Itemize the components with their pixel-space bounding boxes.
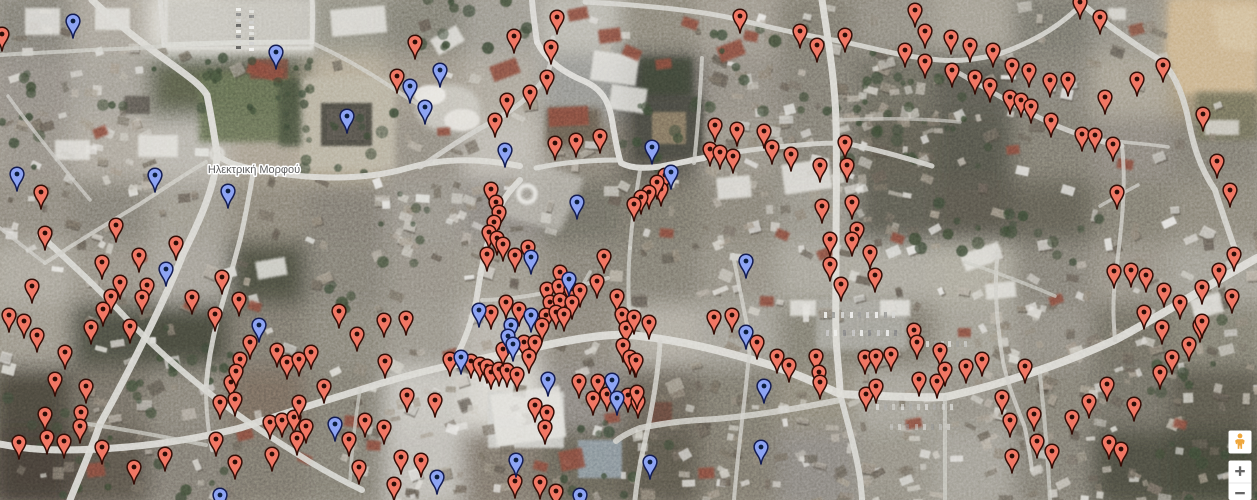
svg-text:Ηλεκτρική Μορφού: Ηλεκτρική Μορφού bbox=[208, 164, 300, 176]
